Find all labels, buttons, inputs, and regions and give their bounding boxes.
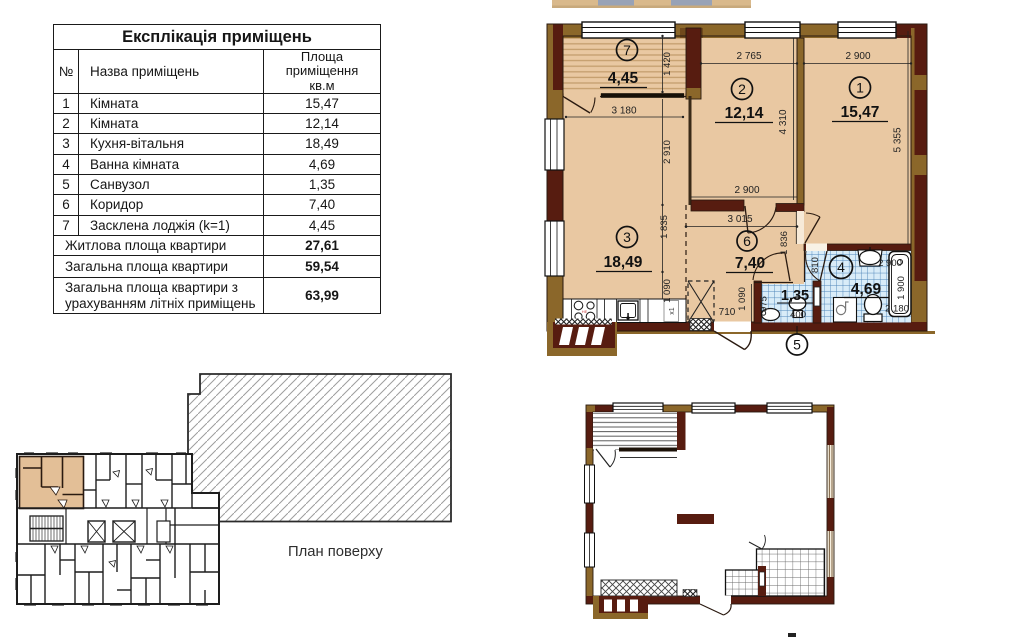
svg-text:7,40: 7,40 <box>735 255 765 272</box>
svg-text:2 900: 2 900 <box>845 51 870 62</box>
svg-text:4: 4 <box>837 259 845 275</box>
svg-text:5 355: 5 355 <box>893 127 904 152</box>
svg-text:6: 6 <box>743 233 751 249</box>
svg-text:7: 7 <box>623 42 631 58</box>
svg-text:НЕ: НЕ <box>582 309 588 314</box>
svg-text:400: 400 <box>790 310 806 321</box>
svg-text:2 900: 2 900 <box>878 258 902 269</box>
svg-text:3 015: 3 015 <box>727 214 752 225</box>
svg-text:5: 5 <box>793 337 801 353</box>
svg-text:1 835: 1 835 <box>659 215 670 239</box>
svg-text:18,49: 18,49 <box>604 254 643 271</box>
svg-text:2 765: 2 765 <box>736 51 761 62</box>
svg-text:2: 2 <box>738 81 746 97</box>
svg-text:1,35: 1,35 <box>781 288 809 304</box>
svg-text:План поверху: План поверху <box>288 544 383 560</box>
svg-text:1 836: 1 836 <box>779 231 790 255</box>
svg-text:12,14: 12,14 <box>725 105 764 122</box>
svg-text:1 900: 1 900 <box>896 276 907 300</box>
svg-text:1 090: 1 090 <box>662 279 673 303</box>
svg-text:3 180: 3 180 <box>611 106 636 117</box>
svg-text:810: 810 <box>810 257 821 273</box>
svg-text:x1: x1 <box>669 307 676 315</box>
svg-text:710: 710 <box>719 307 736 318</box>
svg-text:975: 975 <box>759 296 770 312</box>
svg-text:1: 1 <box>856 80 864 96</box>
svg-text:3: 3 <box>623 229 631 245</box>
svg-text:1 090: 1 090 <box>737 287 748 311</box>
svg-text:1 420: 1 420 <box>662 52 673 76</box>
svg-text:4,69: 4,69 <box>851 281 882 298</box>
svg-text:2 900: 2 900 <box>734 185 759 196</box>
svg-text:15,47: 15,47 <box>841 104 880 121</box>
svg-text:4 310: 4 310 <box>778 109 789 134</box>
svg-text:4,45: 4,45 <box>608 70 639 87</box>
svg-text:2 910: 2 910 <box>662 140 673 164</box>
svg-text:2 180: 2 180 <box>885 304 909 315</box>
